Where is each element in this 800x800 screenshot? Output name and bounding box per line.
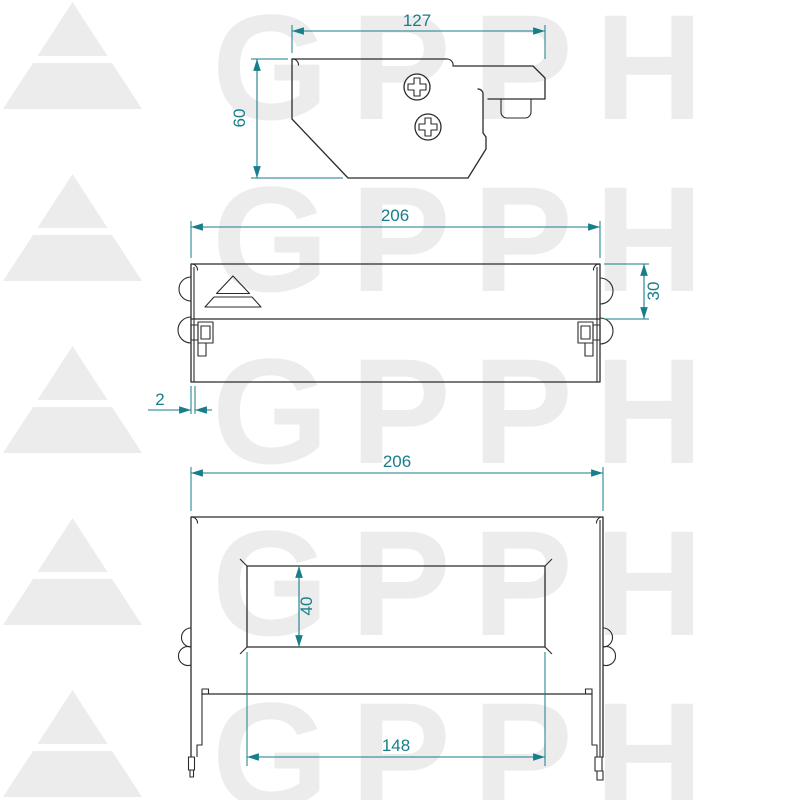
dimension-width-206: 206 bbox=[191, 452, 603, 511]
dimension-label: 2 bbox=[155, 390, 164, 409]
phillips-screw bbox=[415, 114, 441, 140]
dimension-height-60: 60 bbox=[230, 59, 343, 178]
corner-hook bbox=[191, 517, 603, 524]
dimension-slot-length-148: 148 bbox=[247, 652, 545, 766]
dimension-label: 148 bbox=[382, 736, 410, 755]
dimension-label: 30 bbox=[644, 282, 663, 301]
edge-notch bbox=[447, 59, 453, 66]
dimension-label: 60 bbox=[230, 109, 249, 128]
dimension-width-127: 127 bbox=[292, 11, 545, 59]
plate-inner-edge bbox=[194, 267, 597, 382]
dimension-label: 40 bbox=[297, 597, 316, 616]
slot-opening bbox=[240, 559, 552, 654]
side-profile-view: 127 60 bbox=[230, 11, 545, 178]
front-view: 206 30 2 bbox=[148, 206, 663, 414]
clamp-knob bbox=[179, 277, 191, 301]
technical-drawing: 127 60 bbox=[0, 0, 800, 800]
rubber-foot bbox=[501, 99, 531, 118]
hinge-tab bbox=[202, 689, 209, 694]
hinge-tab bbox=[586, 689, 593, 694]
part-outline bbox=[191, 517, 603, 757]
part-outline bbox=[292, 59, 486, 178]
part-outline bbox=[453, 66, 545, 99]
dimension-width-206: 206 bbox=[191, 206, 600, 258]
part-outline bbox=[191, 264, 600, 382]
clamp-knob bbox=[178, 628, 191, 666]
clamp-knob bbox=[600, 318, 613, 344]
clamp-knob bbox=[600, 278, 613, 304]
engraved-triangle-logo-icon bbox=[205, 276, 261, 307]
dimension-label: 206 bbox=[383, 452, 411, 471]
clamp-knob bbox=[603, 628, 616, 666]
mounting-leg bbox=[592, 694, 603, 780]
phillips-screw bbox=[404, 74, 430, 100]
dimension-label: 206 bbox=[381, 206, 409, 225]
dimension-label: 127 bbox=[403, 11, 431, 30]
drawing-sheet: GPPH GPPH GPPH GPPH GPPH bbox=[0, 0, 800, 800]
top-view: 206 40 148 bbox=[178, 452, 615, 780]
dimension-offset-2: 2 bbox=[148, 386, 212, 414]
clamp-knob bbox=[178, 317, 191, 343]
corner-hook bbox=[191, 264, 600, 271]
dimension-slot-height-40: 40 bbox=[297, 566, 316, 647]
corner-hook bbox=[292, 59, 299, 66]
